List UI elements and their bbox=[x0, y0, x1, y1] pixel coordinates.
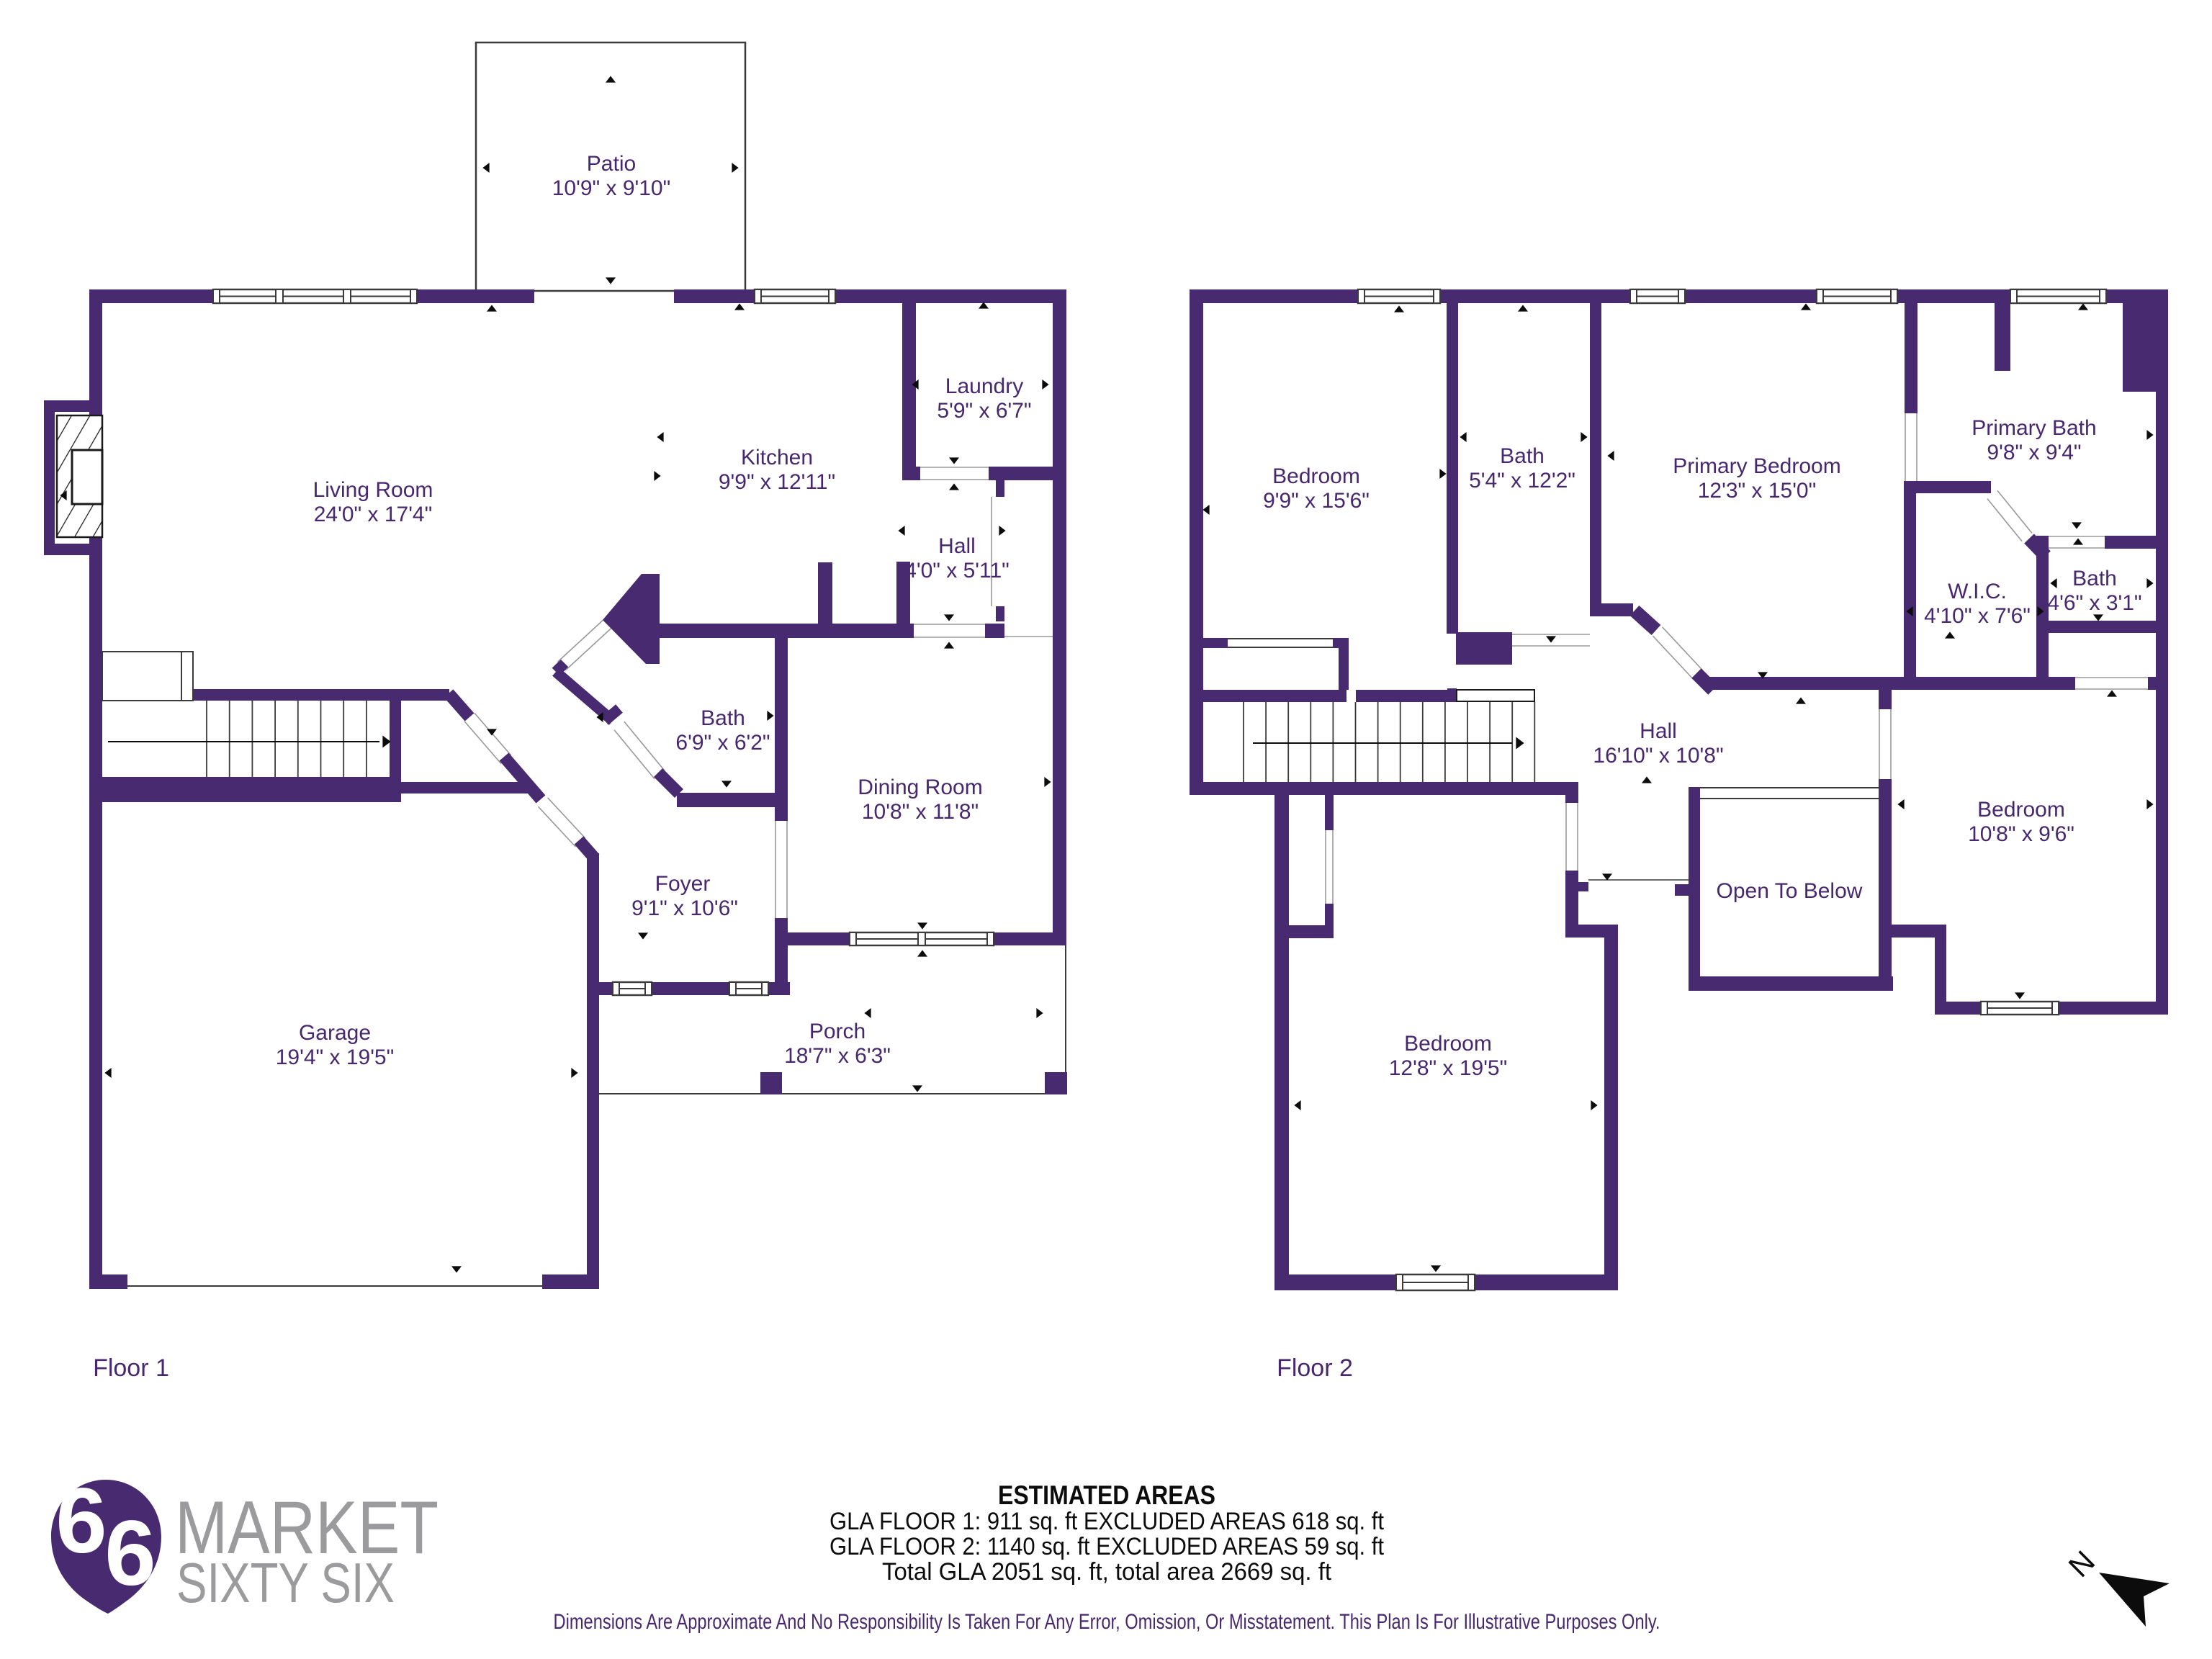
svg-text:W.I.C.: W.I.C. bbox=[1948, 580, 2007, 603]
svg-text:9'8" x 9'4": 9'8" x 9'4" bbox=[1987, 441, 2081, 464]
svg-text:10'8" x 11'8": 10'8" x 11'8" bbox=[862, 800, 979, 824]
svg-text:Primary Bedroom: Primary Bedroom bbox=[1673, 454, 1840, 478]
svg-text:Patio: Patio bbox=[587, 152, 636, 176]
svg-text:Bedroom: Bedroom bbox=[1272, 464, 1360, 488]
svg-text:Open To Below: Open To Below bbox=[1717, 879, 1863, 903]
svg-text:GLA FLOOR 1: 911 sq. ft EXCLUD: GLA FLOOR 1: 911 sq. ft EXCLUDED AREAS 6… bbox=[829, 1508, 1385, 1535]
svg-text:12'8" x 19'5": 12'8" x 19'5" bbox=[1389, 1056, 1508, 1080]
svg-text:4'10" x 7'6": 4'10" x 7'6" bbox=[1924, 604, 2031, 628]
svg-text:Hall: Hall bbox=[938, 534, 976, 558]
svg-text:Dining Room: Dining Room bbox=[858, 775, 982, 799]
svg-text:5'9" x 6'7": 5'9" x 6'7" bbox=[937, 399, 1031, 423]
svg-text:SIXTY SIX: SIXTY SIX bbox=[176, 1551, 395, 1614]
svg-text:Floor 2: Floor 2 bbox=[1277, 1354, 1353, 1382]
svg-text:24'0" x 17'4": 24'0" x 17'4" bbox=[314, 503, 433, 526]
svg-text:18'7" x 6'3": 18'7" x 6'3" bbox=[784, 1044, 891, 1068]
svg-text:Kitchen: Kitchen bbox=[741, 446, 813, 469]
svg-text:16'10" x 10'8": 16'10" x 10'8" bbox=[1593, 744, 1723, 768]
svg-text:Bath: Bath bbox=[701, 706, 745, 730]
svg-text:6: 6 bbox=[104, 1502, 156, 1605]
svg-text:5'4" x 12'2": 5'4" x 12'2" bbox=[1469, 469, 1575, 493]
svg-text:Living Room: Living Room bbox=[313, 478, 433, 502]
svg-text:9'9" x 12'11": 9'9" x 12'11" bbox=[719, 470, 835, 494]
svg-text:9'9" x 15'6": 9'9" x 15'6" bbox=[1263, 489, 1370, 513]
svg-text:Dimensions Are Approximate And: Dimensions Are Approximate And No Respon… bbox=[554, 1610, 1660, 1634]
svg-text:GLA FLOOR 2: 1140 sq. ft EXCLU: GLA FLOOR 2: 1140 sq. ft EXCLUDED AREAS … bbox=[829, 1533, 1385, 1560]
svg-text:10'9" x 9'10": 10'9" x 9'10" bbox=[552, 176, 671, 200]
svg-text:Floor 1: Floor 1 bbox=[93, 1354, 169, 1382]
svg-text:ESTIMATED AREAS: ESTIMATED AREAS bbox=[998, 1480, 1215, 1510]
svg-text:6: 6 bbox=[55, 1470, 107, 1573]
svg-text:Foyer: Foyer bbox=[655, 872, 711, 896]
svg-text:Bath: Bath bbox=[1500, 444, 1545, 468]
svg-text:Total GLA 2051 sq. ft, total a: Total GLA 2051 sq. ft, total area 2669 s… bbox=[882, 1558, 1332, 1586]
svg-text:Bath: Bath bbox=[2072, 567, 2117, 590]
svg-text:Bedroom: Bedroom bbox=[1404, 1032, 1492, 1056]
svg-text:Laundry: Laundry bbox=[945, 374, 1023, 398]
svg-text:Bedroom: Bedroom bbox=[1977, 798, 2065, 822]
svg-text:Garage: Garage bbox=[299, 1021, 371, 1045]
svg-text:Hall: Hall bbox=[1640, 719, 1677, 743]
svg-text:9'1" x 10'6": 9'1" x 10'6" bbox=[631, 896, 738, 920]
svg-text:4'0" x 5'11": 4'0" x 5'11" bbox=[904, 559, 1010, 583]
svg-text:Primary Bath: Primary Bath bbox=[1972, 416, 2096, 440]
svg-text:6'9" x 6'2": 6'9" x 6'2" bbox=[675, 731, 770, 755]
svg-text:19'4" x 19'5": 19'4" x 19'5" bbox=[276, 1046, 395, 1069]
svg-text:12'3" x 15'0": 12'3" x 15'0" bbox=[1698, 479, 1817, 503]
svg-text:Porch: Porch bbox=[809, 1020, 866, 1043]
svg-text:10'8" x 9'6": 10'8" x 9'6" bbox=[1968, 822, 2074, 846]
svg-text:4'6" x 3'1": 4'6" x 3'1" bbox=[2047, 591, 2141, 615]
